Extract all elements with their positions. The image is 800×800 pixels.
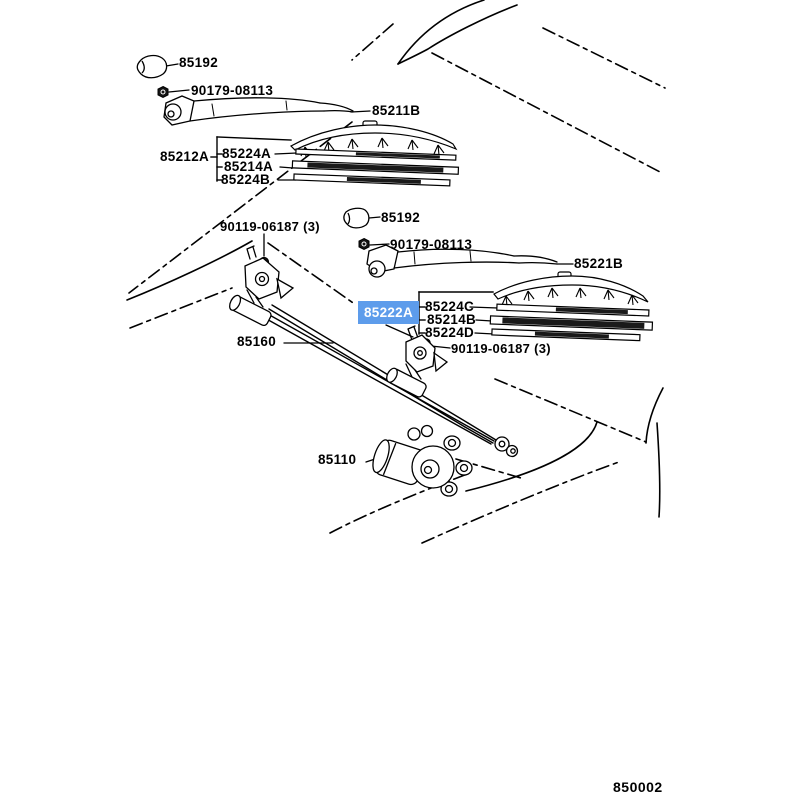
part-label-85224b[interactable]: 85224B	[221, 173, 270, 187]
part-label-85192-top[interactable]: 85192	[179, 56, 218, 70]
left-pivot-drawing	[227, 246, 293, 327]
link-end-drawing	[495, 437, 518, 457]
pivot-cap-2-drawing	[344, 208, 369, 228]
part-label-85212a[interactable]: 85212A	[160, 150, 209, 164]
part-label-85110[interactable]: 85110	[318, 453, 356, 467]
part-label-90119-06187-right[interactable]: 90119-06187 (3)	[451, 342, 551, 356]
wiper-arm-1-drawing	[164, 96, 353, 125]
pivot-cap-1-drawing	[137, 56, 166, 78]
nut-1-drawing	[158, 87, 168, 98]
part-label-85222a-highlighted[interactable]: 85222A	[358, 301, 419, 324]
part-label-90179-08113-top[interactable]: 90179-08113	[191, 84, 273, 98]
wiper-motor-drawing	[369, 426, 472, 497]
part-label-85224d[interactable]: 85224D	[425, 326, 474, 340]
wiper-blade-2-drawing	[490, 272, 653, 341]
part-label-85160[interactable]: 85160	[237, 335, 276, 349]
part-label-85211b[interactable]: 85211B	[372, 104, 420, 118]
nut-2-drawing	[359, 239, 369, 250]
part-label-90119-06187-left[interactable]: 90119-06187 (3)	[220, 220, 320, 234]
diagram-line-art	[0, 0, 800, 800]
part-label-90179-08113-mid[interactable]: 90179-08113	[390, 238, 472, 252]
wiper-blade-1-drawing	[291, 121, 459, 186]
figure-code: 850002	[613, 779, 663, 795]
part-label-85192-mid[interactable]: 85192	[381, 211, 420, 225]
part-label-85221b[interactable]: 85221B	[574, 257, 623, 271]
parts-diagram-canvas: 85192 90179-08113 85211B 85212A 85224A 8…	[0, 0, 800, 800]
